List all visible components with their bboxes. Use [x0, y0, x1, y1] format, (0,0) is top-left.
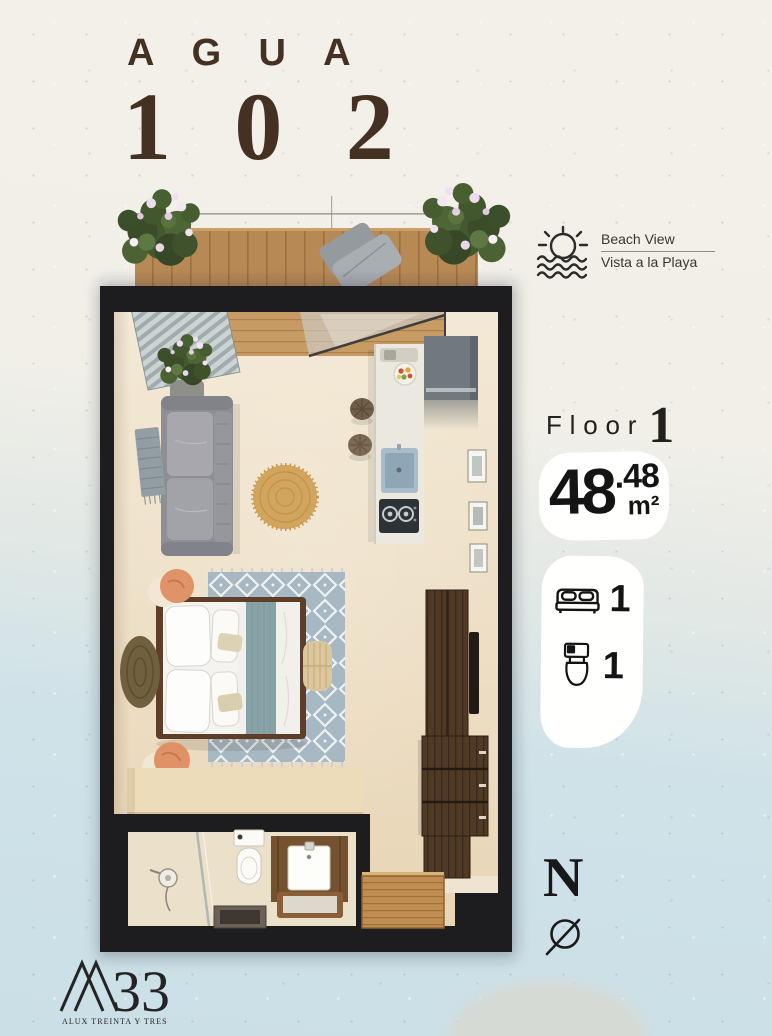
sun-over-waves-icon — [530, 223, 592, 279]
divider-line — [601, 251, 715, 252]
terrace-plant-right — [423, 183, 510, 265]
sofa — [161, 396, 240, 556]
floor-drain — [214, 906, 266, 928]
terrace-plant-left — [118, 189, 200, 266]
pouf — [303, 641, 332, 691]
logo-mark-icon: 33 — [58, 955, 170, 1013]
area-value-int: 48 — [548, 463, 614, 521]
logo-number: 33 — [112, 959, 170, 1024]
flyer-page: AGUA 102 Beach View Vista a la Playa Flo… — [0, 0, 772, 1036]
bathroom-feature: 1 — [560, 642, 625, 691]
beach-view-block: Beach View Vista a la Playa — [530, 223, 715, 279]
toilet-fixture — [234, 830, 264, 884]
desk-counter — [127, 768, 363, 816]
entry-mat — [362, 872, 444, 928]
beach-view-label-en: Beach View — [601, 232, 715, 247]
fruit-bowl — [394, 363, 416, 385]
woven-mat — [120, 636, 160, 708]
floor-row: Floor 1 — [546, 400, 674, 452]
beach-view-label-es: Vista a la Playa — [601, 255, 715, 270]
compass-n-label: N — [543, 850, 589, 906]
fridge — [424, 336, 478, 430]
title-block: AGUA 102 — [127, 34, 457, 175]
unit-name: AGUA — [127, 34, 457, 72]
bath-count: 1 — [603, 647, 625, 685]
bath-tray — [277, 892, 343, 918]
toilet-icon — [560, 642, 595, 690]
unit-number: 102 — [123, 79, 457, 175]
bedroom-feature: 1 — [554, 580, 631, 619]
floor-number: 1 — [648, 400, 674, 452]
bar-stool — [348, 434, 372, 461]
floor-label: Floor — [546, 410, 644, 441]
bed — [156, 597, 308, 751]
tv — [469, 632, 479, 714]
bar-stool — [350, 398, 374, 425]
logo-tagline: ALUX TREINTA Y TRES — [62, 1017, 170, 1026]
bathroom — [128, 830, 356, 928]
features-card: 1 1 — [540, 555, 644, 748]
area-value-dec: .48 — [614, 462, 659, 492]
bed-icon — [554, 583, 600, 614]
compass: N — [543, 850, 589, 960]
bed-count: 1 — [609, 580, 631, 618]
brand-logo: 33 ALUX TREINTA Y TRES — [58, 955, 170, 1026]
area-unit: m² — [627, 492, 659, 519]
picture-frames — [468, 450, 487, 572]
cooktop — [379, 499, 419, 533]
kitchen-sink — [381, 444, 418, 493]
area-card: 48 .48 m² — [538, 451, 670, 542]
kitchen-counter — [368, 344, 424, 544]
bed-runner — [246, 602, 276, 734]
compass-needle-icon — [545, 910, 589, 960]
vanity-sink — [288, 846, 330, 890]
